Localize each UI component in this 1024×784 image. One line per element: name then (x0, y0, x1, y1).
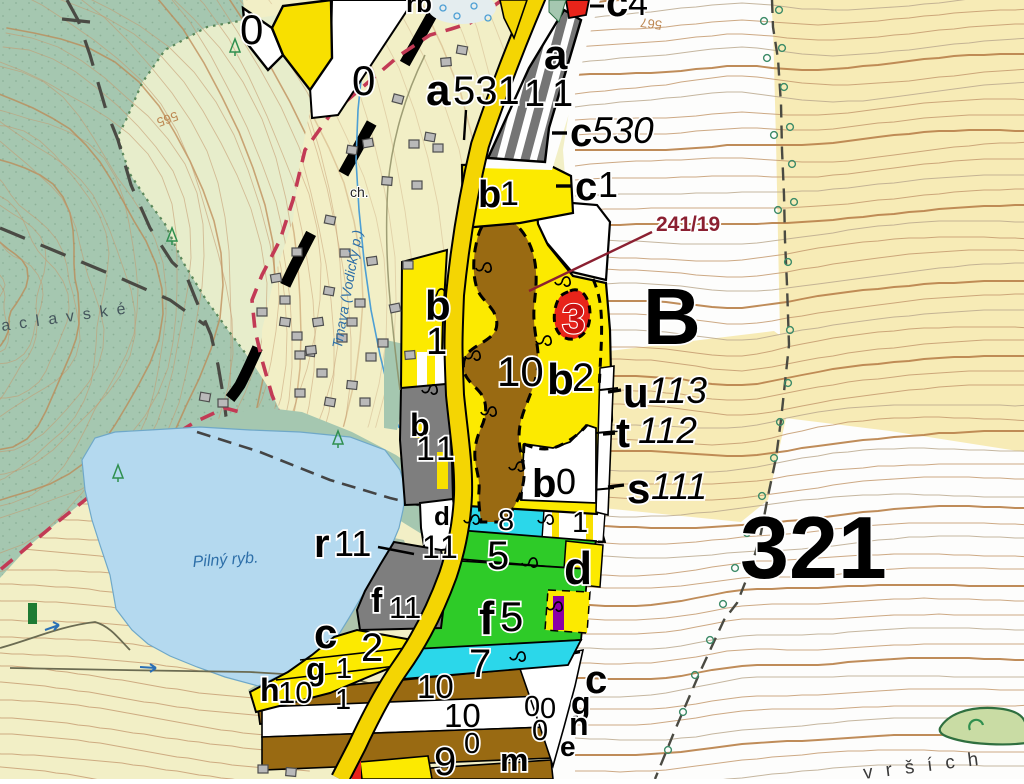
svg-text:10: 10 (497, 348, 544, 395)
svg-text:c: c (575, 165, 597, 209)
svg-text:5: 5 (487, 534, 509, 578)
svg-text:c: c (606, 0, 628, 25)
svg-text:567: 567 (639, 15, 663, 33)
svg-text:111: 111 (651, 466, 707, 507)
svg-text:0: 0 (352, 57, 375, 104)
svg-text:1: 1 (436, 430, 455, 468)
svg-text:321: 321 (740, 498, 887, 597)
svg-text:e: e (560, 731, 576, 762)
svg-text:a: a (426, 66, 451, 115)
svg-text:5: 5 (500, 593, 523, 640)
svg-text:1: 1 (524, 73, 545, 115)
svg-text:m: m (500, 742, 528, 778)
svg-text:241/19: 241/19 (656, 213, 720, 236)
svg-text:1: 1 (440, 529, 458, 565)
svg-text:8: 8 (498, 505, 514, 537)
svg-text:530: 530 (592, 110, 654, 151)
svg-text:B: B (643, 272, 701, 361)
svg-text:b: b (478, 174, 501, 216)
svg-text:1: 1 (500, 175, 519, 213)
svg-text:0: 0 (532, 715, 548, 747)
svg-text:11: 11 (389, 590, 421, 625)
svg-text:c: c (314, 610, 337, 657)
svg-text:t: t (616, 409, 630, 456)
svg-text:1: 1 (422, 529, 440, 565)
svg-text:2: 2 (361, 626, 383, 670)
svg-text:ch.: ch. (350, 184, 369, 200)
svg-text:112: 112 (638, 410, 697, 451)
svg-text:s: s (627, 465, 650, 512)
svg-text:9: 9 (434, 740, 456, 779)
svg-text:1: 1 (572, 507, 588, 539)
svg-text:11: 11 (334, 523, 371, 564)
svg-text:1: 1 (416, 430, 435, 468)
svg-text:c: c (570, 111, 592, 155)
svg-text:f: f (371, 582, 383, 620)
svg-text:3: 3 (562, 295, 585, 342)
svg-text:f: f (479, 592, 495, 644)
svg-text:d: d (434, 501, 450, 531)
svg-text:0: 0 (464, 728, 480, 760)
svg-text:113: 113 (648, 370, 707, 411)
svg-text:d: d (564, 542, 592, 594)
svg-text:1: 1 (426, 321, 447, 363)
svg-text:1: 1 (598, 164, 618, 205)
svg-text:1: 1 (336, 653, 352, 685)
svg-text:7: 7 (469, 642, 491, 686)
svg-text:b: b (547, 355, 574, 404)
svg-text:0: 0 (240, 6, 263, 53)
svg-text:10: 10 (278, 675, 312, 710)
svg-text:0: 0 (556, 461, 576, 502)
svg-text:r: r (314, 522, 330, 566)
svg-text:1: 1 (552, 73, 573, 115)
svg-text:b: b (532, 462, 556, 506)
svg-text:531: 531 (453, 69, 520, 113)
svg-text:1: 1 (335, 684, 351, 716)
svg-text:2: 2 (572, 356, 594, 400)
svg-text:a: a (544, 31, 568, 78)
svg-text:rb: rb (406, 0, 432, 18)
svg-text:h: h (260, 672, 280, 708)
